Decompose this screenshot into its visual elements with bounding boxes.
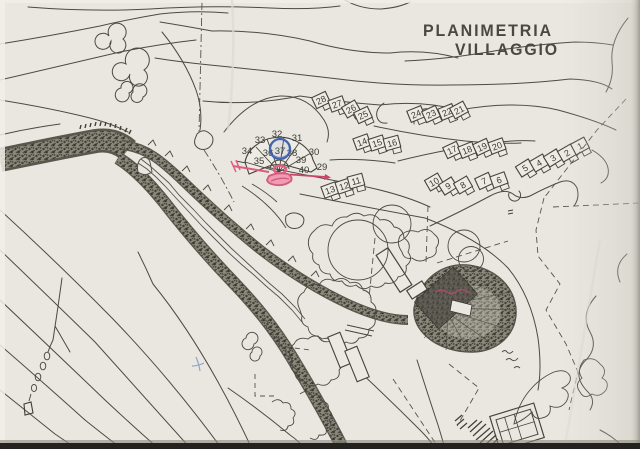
svg-text:33: 33 — [255, 135, 266, 146]
svg-text:34: 34 — [242, 146, 253, 157]
svg-text:PLANIMETRIA: PLANIMETRIA — [423, 21, 553, 40]
svg-text:31: 31 — [292, 133, 303, 144]
svg-text:29: 29 — [317, 162, 328, 173]
svg-text:30: 30 — [309, 147, 320, 158]
svg-text:VILLAGGIO: VILLAGGIO — [455, 40, 559, 59]
